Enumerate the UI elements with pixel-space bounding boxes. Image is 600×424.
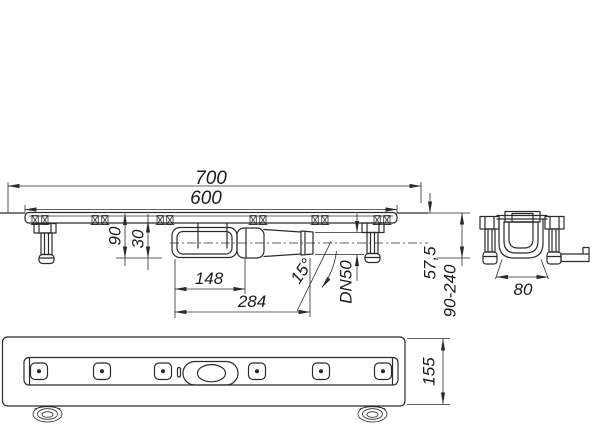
end-leg-left xyxy=(480,217,499,265)
dim-label-148: 148 xyxy=(195,269,224,288)
wall-bracket xyxy=(561,248,589,262)
channel-flange xyxy=(25,213,397,224)
dim-label-90: 90 xyxy=(106,226,125,245)
dim-label-600: 600 xyxy=(190,188,222,209)
support-leg-left xyxy=(34,224,56,264)
end-grate xyxy=(505,212,540,223)
dim-label-57-5: 57,5 xyxy=(421,246,440,280)
trap-body xyxy=(172,223,237,258)
plan-index-mark xyxy=(178,368,181,378)
technical-drawing-canvas: 700 600 90 30 148 284 xyxy=(0,0,600,424)
dim-label-700: 700 xyxy=(195,168,227,189)
bottom-plan-view: 155 xyxy=(3,337,451,422)
dim-80: 80 xyxy=(496,260,549,300)
dim-label-30: 30 xyxy=(129,229,148,248)
end-section-view: 80 xyxy=(480,212,589,300)
dim-label-155: 155 xyxy=(420,357,439,386)
dim-148: 148 xyxy=(175,259,245,318)
plan-foot-left xyxy=(33,406,62,422)
dim-label-80: 80 xyxy=(514,280,533,299)
dim-label-dn50: DN50 xyxy=(337,260,356,304)
dim-angle-15: 15° xyxy=(287,242,337,312)
end-channel-body xyxy=(499,219,543,258)
plan-foot-right xyxy=(358,406,387,422)
plan-drain-opening xyxy=(183,362,238,386)
side-elevation-view: 700 600 90 30 148 284 xyxy=(0,168,470,318)
dim-600: 600 xyxy=(25,188,397,213)
dim-label-284: 284 xyxy=(237,292,266,311)
plan-body-outline xyxy=(3,337,406,406)
plan-fixing-pads xyxy=(31,363,392,380)
dim-label-90-240: 90-240 xyxy=(441,264,460,317)
dim-label-15deg: 15° xyxy=(287,255,317,287)
dim-155: 155 xyxy=(407,339,450,405)
drain-drawing-svg: 700 600 90 30 148 284 xyxy=(0,0,600,424)
